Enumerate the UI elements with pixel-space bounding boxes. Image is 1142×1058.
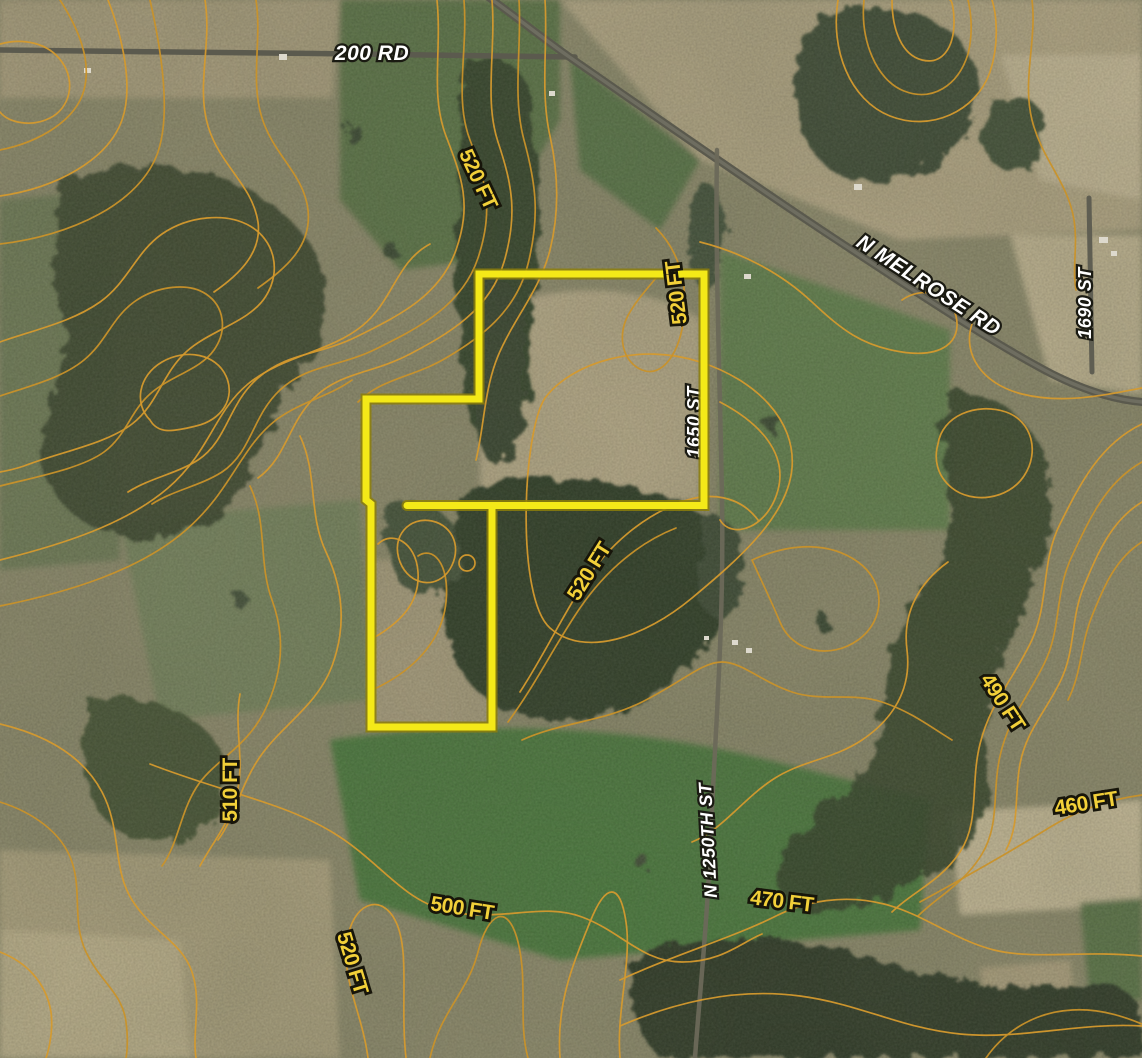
terrain-grain-light: [0, 0, 1142, 1058]
map-canvas: 1650 ST 200 RD N MELROSE RD 1690 ST N 12…: [0, 0, 1142, 1058]
road-label-1690-st: 1690 ST: [1075, 266, 1095, 339]
satellite-topo-map[interactable]: 1650 ST 200 RD N MELROSE RD 1690 ST N 12…: [0, 0, 1142, 1058]
road-label-200-rd: 200 RD: [334, 42, 409, 65]
contour-label-510ft-west: 510 FT: [219, 758, 242, 822]
